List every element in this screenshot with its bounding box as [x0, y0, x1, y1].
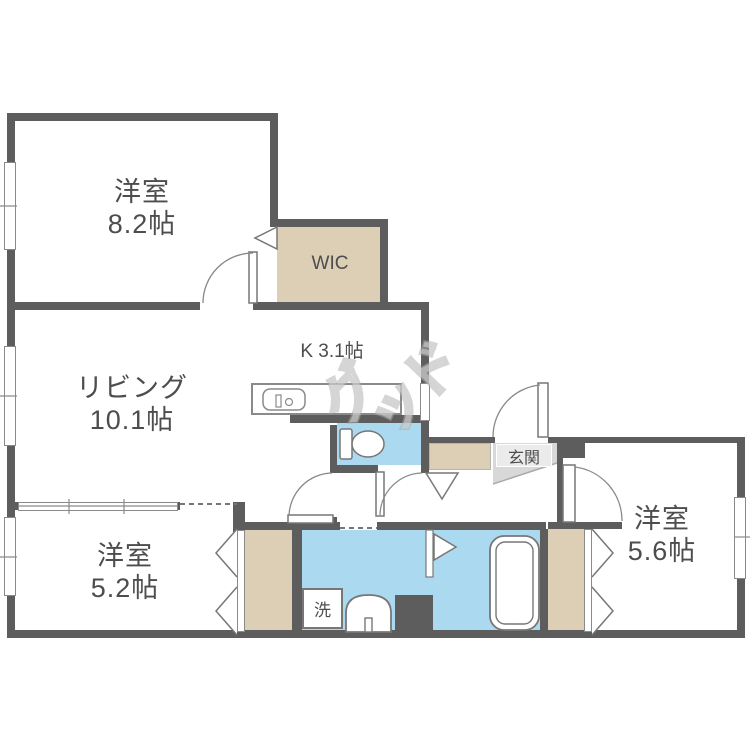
wall-segment [377, 522, 546, 530]
bedroom2-label: 洋室 5.2帖 [25, 540, 225, 605]
shoe-closet [429, 443, 491, 470]
window [4, 346, 16, 446]
entrance-door-arc [493, 385, 540, 437]
wall-segment [330, 517, 337, 530]
wall-segment [270, 113, 278, 227]
shoe-closet-door-marker [426, 473, 458, 499]
bathroom-floor [426, 530, 540, 632]
wall-segment [737, 579, 745, 638]
door-leaf [376, 472, 384, 516]
wall-segment [557, 437, 585, 458]
wall-segment [292, 522, 302, 638]
closet-bedroom2 [245, 529, 292, 632]
wall-segment [253, 302, 429, 310]
door-swing-arc [289, 473, 332, 516]
bedroom1-size: 8.2帖 [42, 208, 242, 240]
wall-segment [737, 437, 745, 497]
closet-door-strip [237, 530, 245, 632]
living-size: 10.1帖 [32, 404, 232, 436]
door-swing-arc [203, 253, 253, 303]
bedroom2-size: 5.2帖 [25, 572, 225, 604]
wall-segment [7, 250, 15, 346]
bedroom1-name: 洋室 [42, 176, 242, 208]
washing-machine-label: 洗 [302, 588, 343, 629]
wall-segment [270, 219, 388, 227]
living-label: リビング 10.1帖 [32, 372, 232, 437]
bedroom3-name: 洋室 [562, 503, 750, 535]
entrance-door-leaf [538, 383, 548, 437]
wall-segment [7, 596, 15, 638]
door-leaf [249, 252, 257, 303]
wall-segment [540, 529, 548, 638]
bedroom3-label: 洋室 5.6帖 [562, 503, 750, 568]
wall-segment [237, 522, 340, 530]
door-swing-arc [380, 473, 422, 515]
wall-segment [7, 113, 15, 162]
wall-segment [429, 437, 495, 443]
floor-plan: 洋室 8.2帖 WIC K 3.1帖 リビング 10.1帖 洋室 5.2帖 洋室… [0, 0, 750, 750]
wall-segment [330, 465, 378, 473]
living-name: リビング [32, 372, 232, 404]
window [18, 502, 178, 511]
wall-segment [7, 446, 15, 517]
bedroom3-size: 5.6帖 [562, 535, 750, 567]
wall-segment [233, 502, 245, 532]
entrance-label: 玄関 [496, 444, 552, 467]
wic-label: WIC [278, 253, 382, 276]
wall-segment [7, 630, 745, 638]
window [4, 517, 16, 596]
bedroom1-label: 洋室 8.2帖 [42, 176, 242, 241]
wall-segment [7, 113, 278, 121]
wall-segment [7, 302, 200, 310]
bedroom2-name: 洋室 [25, 540, 225, 572]
wall-segment [395, 595, 433, 632]
window [4, 162, 16, 250]
wic-door-arrow [255, 227, 277, 249]
watermark: グ ッ ド [308, 321, 480, 438]
